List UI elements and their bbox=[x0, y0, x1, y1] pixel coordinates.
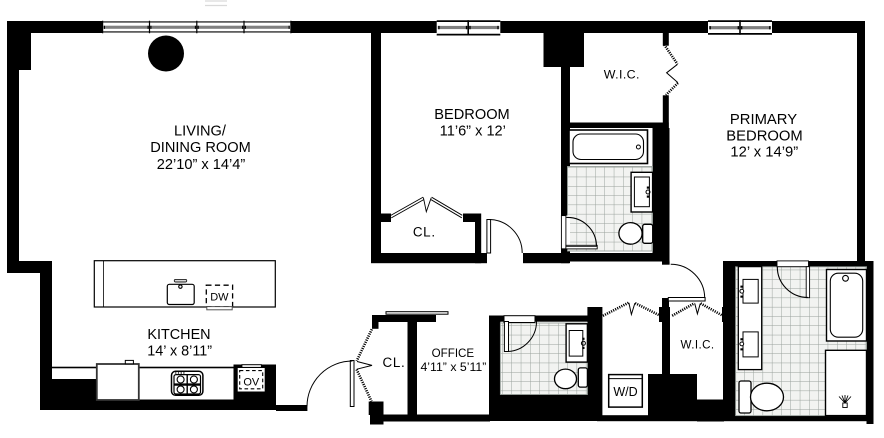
svg-text:BEDROOM: BEDROOM bbox=[434, 107, 509, 123]
svg-text:DW: DW bbox=[210, 291, 229, 303]
svg-text:BEDROOM: BEDROOM bbox=[726, 129, 802, 145]
svg-text:OV: OV bbox=[243, 377, 260, 389]
svg-text:LIVING/: LIVING/ bbox=[174, 124, 227, 140]
svg-text:OFFICE: OFFICE bbox=[432, 347, 475, 360]
svg-text:KITCHEN: KITCHEN bbox=[147, 327, 210, 343]
svg-text:22’10” x 14’4”: 22’10” x 14’4” bbox=[157, 157, 246, 173]
svg-text:CL.: CL. bbox=[383, 355, 406, 370]
svg-text:W.I.C.: W.I.C. bbox=[604, 68, 640, 82]
svg-text:PRIMARY: PRIMARY bbox=[730, 112, 797, 128]
svg-text:14’ x 8’11”: 14’ x 8’11” bbox=[147, 344, 212, 360]
svg-text:DINING ROOM: DINING ROOM bbox=[150, 140, 251, 156]
svg-text:4’11” x 5’11”: 4’11” x 5’11” bbox=[420, 360, 486, 374]
svg-text:W.I.C.: W.I.C. bbox=[681, 339, 715, 352]
svg-text:CL.: CL. bbox=[413, 225, 436, 240]
svg-text:12’ x 14’9”: 12’ x 14’9” bbox=[730, 144, 798, 160]
svg-text:11’6” x 12’: 11’6” x 12’ bbox=[440, 123, 506, 139]
svg-text:W/D: W/D bbox=[613, 385, 637, 399]
